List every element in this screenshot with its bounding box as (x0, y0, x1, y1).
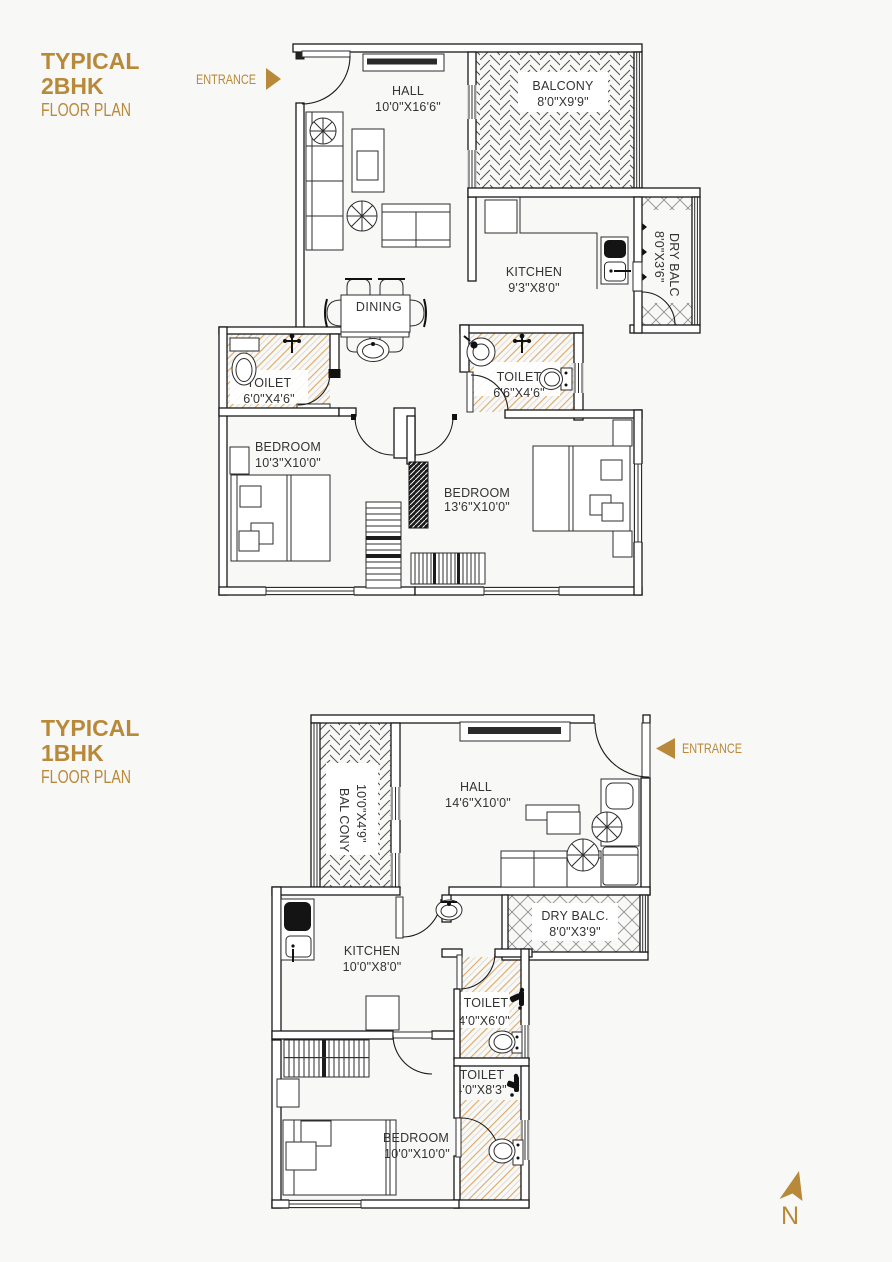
svg-text:HALL: HALL (392, 84, 424, 98)
svg-text:FLOOR PLAN: FLOOR PLAN (41, 100, 131, 120)
svg-text:BEDROOM: BEDROOM (255, 440, 321, 454)
svg-text:6'0"X4'6": 6'0"X4'6" (243, 392, 295, 406)
svg-text:DINING: DINING (356, 300, 402, 314)
svg-text:FLOOR PLAN: FLOOR PLAN (41, 767, 131, 787)
svg-text:ENTRANCE: ENTRANCE (196, 72, 256, 87)
svg-text:10'0"X16'6": 10'0"X16'6" (375, 100, 441, 114)
svg-text:10'0"X10'0": 10'0"X10'0" (384, 1147, 450, 1161)
svg-text:KITCHEN: KITCHEN (344, 944, 400, 958)
svg-text:BALCONY: BALCONY (532, 79, 594, 93)
svg-text:HALL: HALL (460, 780, 492, 794)
svg-text:TYPICAL: TYPICAL (41, 715, 139, 741)
svg-text:TOILET: TOILET (460, 1068, 505, 1082)
svg-text:TOILET: TOILET (464, 996, 509, 1010)
svg-text:9'3"X8'0": 9'3"X8'0" (508, 281, 560, 295)
svg-text:14'6"X10'0": 14'6"X10'0" (445, 796, 511, 810)
svg-text:8'0"X3'6": 8'0"X3'6" (652, 231, 666, 283)
svg-text:2BHK: 2BHK (41, 73, 104, 99)
svg-text:6'6"X4'6": 6'6"X4'6" (493, 386, 545, 400)
svg-text:4'0"X6'0": 4'0"X6'0" (458, 1014, 510, 1028)
svg-text:ENTRANCE: ENTRANCE (682, 741, 742, 756)
svg-text:BAL CONY: BAL CONY (337, 788, 351, 853)
svg-text:13'6"X10'0": 13'6"X10'0" (444, 500, 510, 514)
svg-text:10'0"X4'9": 10'0"X4'9" (354, 784, 368, 843)
svg-text:4'0"X8'3": 4'0"X8'3" (455, 1083, 507, 1097)
svg-text:BEDROOM: BEDROOM (383, 1131, 449, 1145)
svg-text:TYPICAL: TYPICAL (41, 48, 139, 74)
svg-text:BEDROOM: BEDROOM (444, 486, 510, 500)
svg-text:8'0"X3'9": 8'0"X3'9" (549, 925, 601, 939)
svg-text:1BHK: 1BHK (41, 740, 104, 766)
svg-text:TOILET: TOILET (497, 370, 542, 384)
svg-text:8'0"X9'9": 8'0"X9'9" (537, 95, 589, 109)
svg-text:DRY BALC.: DRY BALC. (541, 909, 608, 923)
svg-text:DRY BALC: DRY BALC (667, 233, 681, 297)
svg-text:KITCHEN: KITCHEN (506, 265, 562, 279)
svg-text:10'3"X10'0": 10'3"X10'0" (255, 456, 321, 470)
svg-text:N: N (781, 1202, 799, 1230)
svg-text:10'0"X8'0": 10'0"X8'0" (343, 960, 402, 974)
